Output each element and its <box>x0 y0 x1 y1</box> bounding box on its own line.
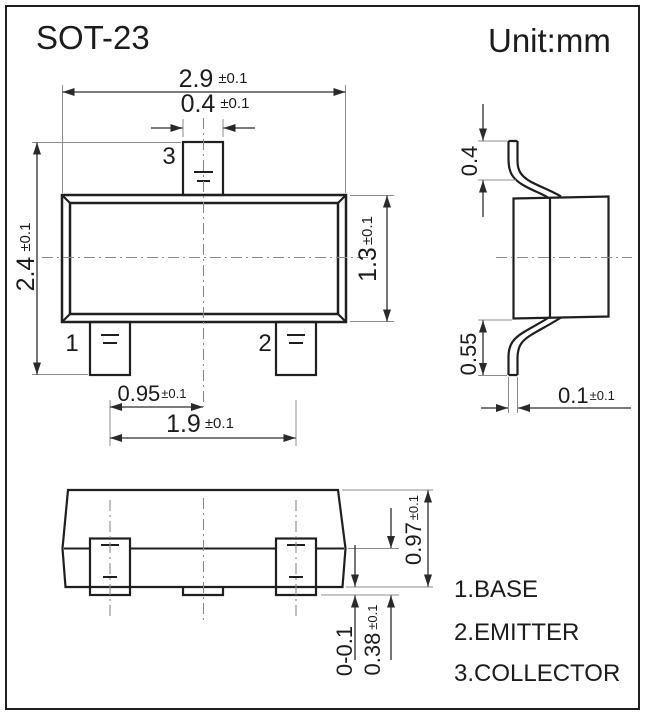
side-bottom-lead <box>509 318 562 376</box>
dim-pin-span-label: 1.9±0.1 <box>166 410 234 438</box>
page-border <box>6 6 639 709</box>
side-top-lead <box>509 141 562 198</box>
pin3-number: 3 <box>162 143 175 170</box>
unit-label: Unit:mm <box>488 22 611 59</box>
dim-standoff-label: 0-0.1 <box>332 626 357 676</box>
dim-pin-pitch: 0.95±0.1 <box>110 381 296 446</box>
pin-legend: 1.BASE 2.EMITTER 3.COLLECTOR <box>454 576 620 687</box>
pin2-number: 2 <box>258 330 271 357</box>
dim-shoulder-height: 0.4 <box>457 104 516 217</box>
dim-body-thickness-label: 0.97±0.1 <box>401 495 426 565</box>
side-view: 0.4 0.55 0.1±0.1 <box>456 104 632 413</box>
dim-lead-height: 0.55 <box>456 320 512 376</box>
dim-body-width-label: 2.9±0.1 <box>179 65 248 93</box>
legend-item-base: 1.BASE <box>454 576 538 603</box>
pin1-lead <box>90 322 130 375</box>
dim-pin3-width-label: 0.4±0.1 <box>181 90 250 118</box>
dim-pin-pitch-label: 0.95±0.1 <box>117 381 186 406</box>
dim-lead-thickness-value: 0.1 <box>558 383 589 408</box>
dim-body-height-label: 1.3±0.1 <box>354 216 382 282</box>
dim-pin-span-value: 1.9 <box>166 410 201 438</box>
dim-foot-height-tol: ±0.1 <box>365 604 380 629</box>
dim-foot-height: 0.38±0.1 <box>360 508 391 676</box>
dim-pin-span: 1.9±0.1 <box>110 410 296 438</box>
dim-body-thickness: 0.97±0.1 <box>401 491 428 587</box>
dim-lead-height-label: 0.55 <box>456 333 481 376</box>
dim-pin3-width-tol: ±0.1 <box>220 95 249 112</box>
dim-body-height: 1.3±0.1 <box>350 196 394 322</box>
dim-body-height-tol: ±0.1 <box>359 216 376 245</box>
dim-total-height-value: 2.4 <box>12 257 40 292</box>
dim-total-height-label: 2.4±0.1 <box>12 223 40 292</box>
legend-item-emitter: 2.EMITTER <box>454 619 579 646</box>
technical-drawing: SOT-23 Unit:mm 2.9±0.1 0.4±0.1 <box>0 0 645 715</box>
dim-lead-thickness-label: 0.1±0.1 <box>558 383 615 408</box>
dim-shoulder-height-label: 0.4 <box>457 146 482 177</box>
dim-lead-thickness: 0.1±0.1 <box>481 377 631 413</box>
dim-pin-pitch-value: 0.95 <box>117 381 160 406</box>
dim-pin-pitch-tol: ±0.1 <box>161 386 186 401</box>
dim-pin-span-tol: ±0.1 <box>205 415 234 432</box>
bottom-view: 0.97±0.1 0-0.1 0.38±0.1 <box>63 490 434 676</box>
dim-foot-height-label: 0.38±0.1 <box>360 604 385 675</box>
dim-body-thickness-value: 0.97 <box>401 522 426 565</box>
legend-item-collector: 3.COLLECTOR <box>454 660 620 687</box>
pin1-number: 1 <box>65 330 78 357</box>
pin2-lead <box>276 322 316 375</box>
dim-total-height-tol: ±0.1 <box>17 223 34 252</box>
dim-body-height-value: 1.3 <box>354 247 382 282</box>
bottom-centerlines <box>110 498 296 620</box>
dim-pin3-width: 0.4±0.1 <box>151 90 255 137</box>
front-view: 2.9±0.1 0.4±0.1 2.4±0.1 1.3±0.1 0.95±0.1 <box>12 65 394 446</box>
dim-body-width-value: 2.9 <box>179 65 214 93</box>
page-title: SOT-23 <box>36 19 150 56</box>
dim-foot-height-value: 0.38 <box>360 633 385 676</box>
dim-lead-thickness-tol: ±0.1 <box>590 388 615 403</box>
dim-pin3-width-value: 0.4 <box>181 90 216 118</box>
dim-total-height: 2.4±0.1 <box>12 143 181 375</box>
dim-body-width-tol: ±0.1 <box>218 70 247 87</box>
dim-body-thickness-tol: ±0.1 <box>406 495 421 520</box>
